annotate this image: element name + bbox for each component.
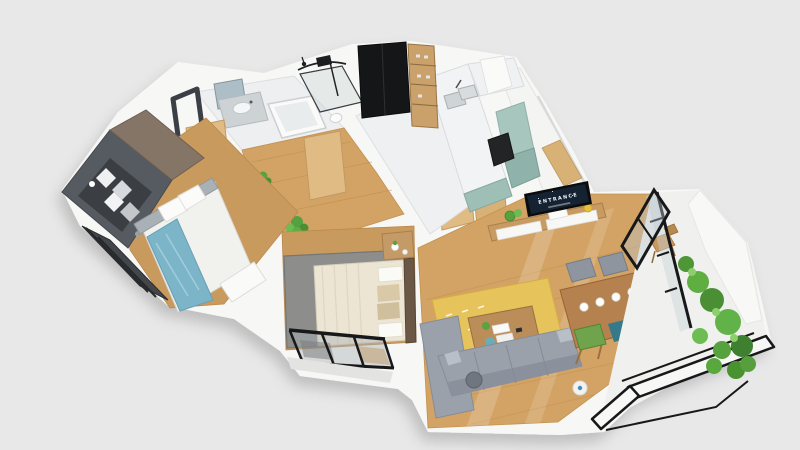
plant-foliage — [700, 288, 724, 312]
console-plant — [505, 211, 515, 221]
coffee-table-plant — [482, 322, 490, 330]
shelf-decor — [89, 181, 95, 187]
ottoman-pouf — [466, 372, 482, 388]
master-pillow-tan — [377, 302, 400, 320]
plant-foliage — [713, 341, 731, 359]
side-table-cup — [578, 386, 582, 390]
plant-foliage — [692, 328, 708, 344]
plant-highlight — [712, 308, 720, 316]
sink-faucet — [250, 101, 253, 104]
floor-plan-render: ENTRANCE — [0, 0, 800, 450]
door-bathroom — [304, 131, 346, 200]
ceiling-lamp — [302, 62, 306, 66]
render-canvas: ENTRANCE — [0, 0, 800, 450]
plant-foliage — [706, 358, 722, 374]
master-pillow — [378, 322, 403, 338]
console-plant — [514, 209, 522, 217]
nightstand-plant — [393, 241, 397, 245]
plant-highlight — [688, 268, 696, 276]
dinner-plate — [596, 298, 604, 306]
dinner-plate — [580, 303, 588, 311]
plant-highlight — [730, 334, 738, 342]
plant-foliage — [740, 356, 756, 372]
star — [538, 198, 539, 199]
nightstand-vase — [403, 250, 408, 255]
master-pillow-tan — [377, 284, 400, 302]
dinner-plate — [612, 293, 620, 301]
master-pillow — [378, 266, 403, 282]
master-headboard — [404, 258, 416, 343]
star — [552, 191, 553, 192]
